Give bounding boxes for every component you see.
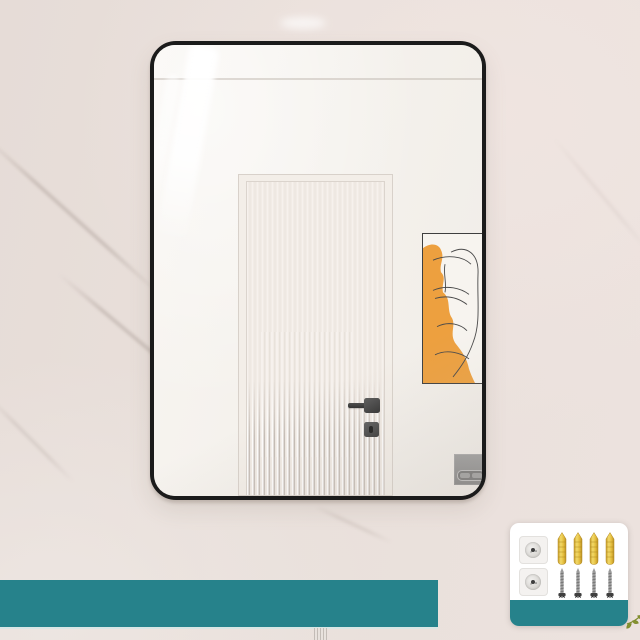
marble-vein bbox=[0, 397, 75, 484]
mounting-screw bbox=[604, 567, 616, 600]
adhesive-wall-plate bbox=[519, 568, 548, 596]
hardware-kit-card bbox=[510, 523, 628, 626]
fluted-glass-texture bbox=[261, 332, 353, 457]
marble-vein bbox=[552, 137, 640, 254]
glare-streak bbox=[154, 45, 219, 251]
wall-anchor bbox=[588, 532, 600, 565]
adhesive-wall-plate bbox=[519, 536, 548, 564]
plate-screw-circle bbox=[525, 542, 541, 558]
wall-light-smudge bbox=[280, 17, 326, 29]
screw-row bbox=[556, 567, 616, 600]
teal-banner bbox=[0, 580, 438, 627]
marble-vein bbox=[314, 505, 392, 544]
door-lock bbox=[364, 422, 379, 437]
abstract-art-poster bbox=[422, 233, 482, 384]
fluted-texture-artifact bbox=[314, 628, 327, 640]
framed-mirror bbox=[150, 41, 486, 500]
anchor-row bbox=[556, 532, 616, 565]
glare-streak bbox=[154, 73, 181, 213]
wall-anchor bbox=[556, 532, 568, 565]
reflected-door bbox=[238, 174, 393, 496]
mounting-screw bbox=[572, 567, 584, 600]
mounting-screw bbox=[556, 567, 568, 600]
door-handle-rosette bbox=[364, 398, 380, 413]
flush-plate-buttons bbox=[457, 470, 482, 481]
reflected-flush-plate bbox=[454, 454, 482, 485]
door-handle bbox=[348, 403, 378, 408]
card-teal-stripe bbox=[510, 600, 628, 626]
poster-orange-blob bbox=[423, 244, 475, 383]
wall-anchor bbox=[572, 532, 584, 565]
reflected-ceiling-line bbox=[154, 78, 482, 80]
wall-anchor bbox=[604, 532, 616, 565]
plate-screw-circle bbox=[525, 574, 541, 590]
poster-line-art bbox=[433, 249, 478, 377]
poster-artwork bbox=[423, 234, 482, 383]
marble-vein bbox=[0, 134, 162, 297]
fluted-glass-door-slab bbox=[246, 181, 385, 495]
mounting-screw bbox=[588, 567, 600, 600]
product-photo bbox=[0, 0, 640, 640]
mirror-glass bbox=[154, 45, 482, 496]
plant-sprig bbox=[626, 608, 640, 630]
wall-plate-column bbox=[519, 536, 548, 596]
